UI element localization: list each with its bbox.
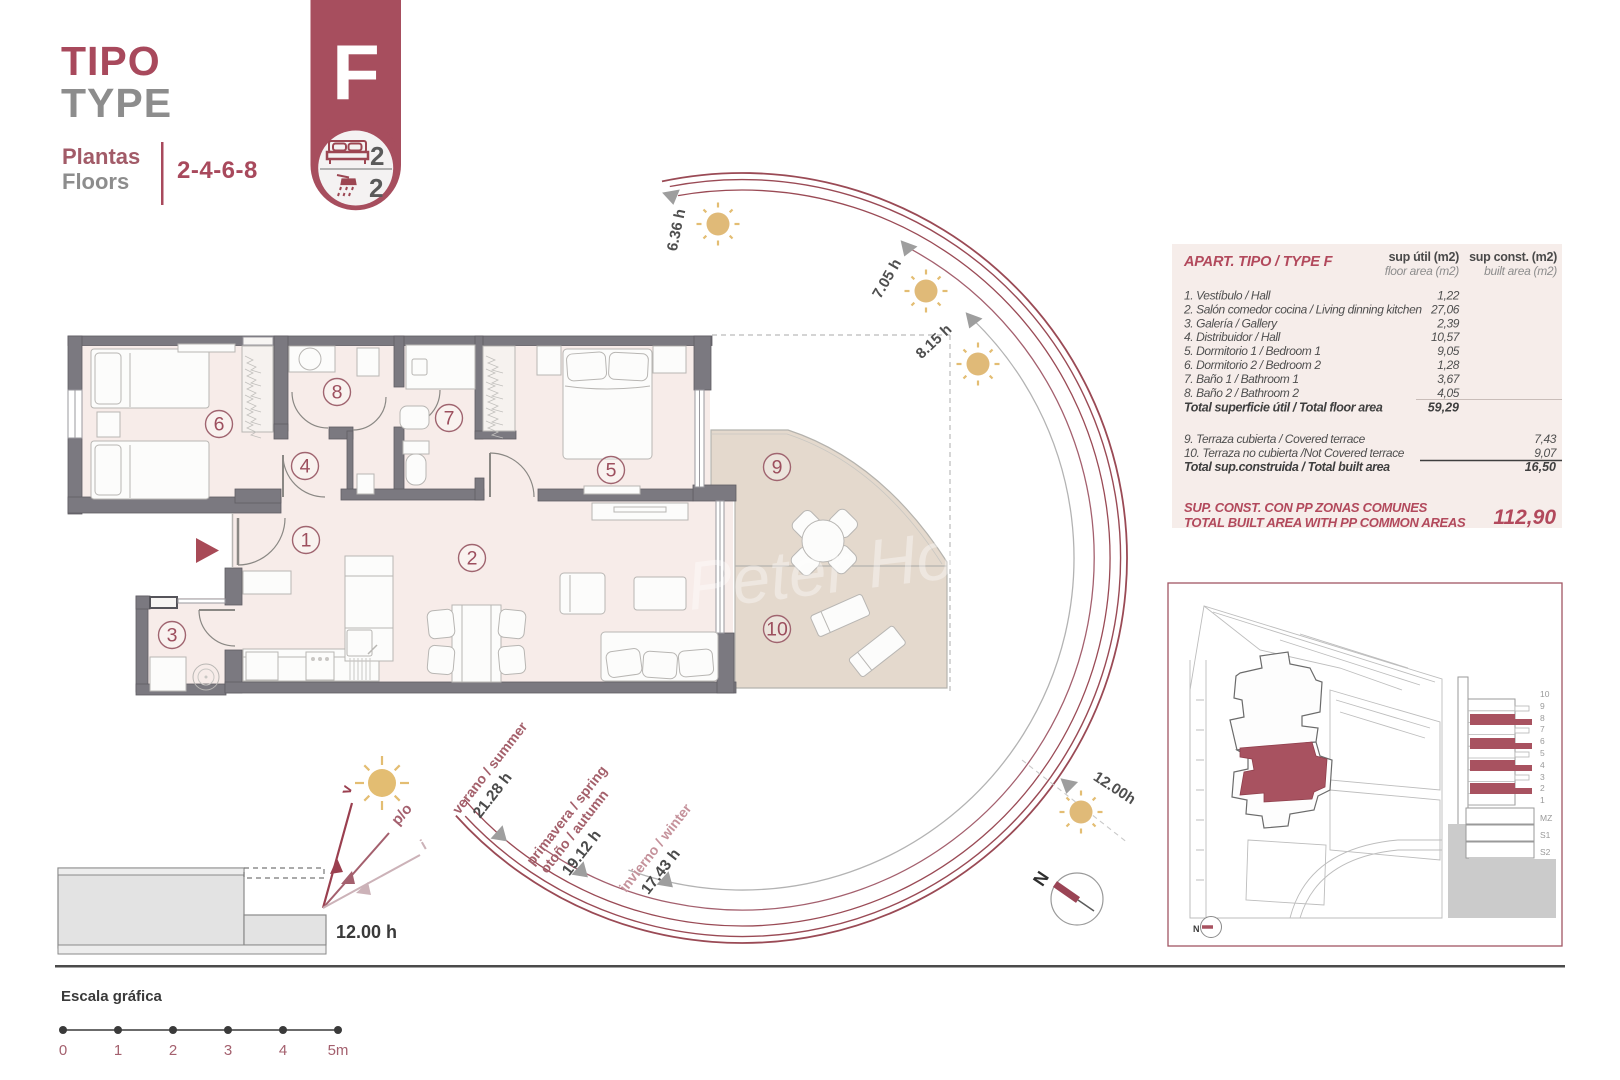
svg-text:5m: 5m <box>328 1042 349 1059</box>
svg-text:F: F <box>332 28 380 116</box>
svg-text:27,06: 27,06 <box>1430 302 1460 316</box>
svg-text:TIPO: TIPO <box>61 38 161 84</box>
svg-text:6: 6 <box>214 414 225 436</box>
svg-text:4. Distribuidor / Hall: 4. Distribuidor / Hall <box>1184 330 1281 344</box>
svg-text:MZ: MZ <box>1540 813 1552 823</box>
svg-text:2. Salón comedor cocina / Livi: 2. Salón comedor cocina / Living dinning… <box>1183 302 1422 316</box>
svg-text:9,05: 9,05 <box>1437 344 1459 358</box>
svg-text:floor area (m2): floor area (m2) <box>1385 264 1459 278</box>
svg-text:9,07: 9,07 <box>1534 446 1557 460</box>
svg-text:1,22: 1,22 <box>1437 289 1459 303</box>
svg-text:7: 7 <box>444 408 455 430</box>
svg-text:1: 1 <box>301 530 312 552</box>
svg-text:12.00 h: 12.00 h <box>336 922 397 942</box>
svg-text:5. Dormitorio 1 / Bedroom 1: 5. Dormitorio 1 / Bedroom 1 <box>1184 344 1321 358</box>
svg-text:2-4-6-8: 2-4-6-8 <box>177 157 258 184</box>
svg-text:3,67: 3,67 <box>1437 372 1460 386</box>
svg-text:2: 2 <box>370 141 384 171</box>
svg-text:59,29: 59,29 <box>1428 401 1459 415</box>
svg-text:8. Baño 2 / Bathroom 2: 8. Baño 2 / Bathroom 2 <box>1184 386 1299 400</box>
svg-text:1: 1 <box>114 1042 122 1059</box>
svg-text:2: 2 <box>169 1042 177 1059</box>
svg-text:Escala gráfica: Escala gráfica <box>61 988 163 1005</box>
svg-text:10,57: 10,57 <box>1431 330 1461 344</box>
svg-text:3: 3 <box>224 1042 232 1059</box>
svg-text:i: i <box>418 837 430 854</box>
svg-text:2,39: 2,39 <box>1436 316 1459 330</box>
svg-text:10: 10 <box>1540 689 1550 699</box>
svg-text:10: 10 <box>766 619 788 641</box>
svg-text:8.15 h: 8.15 h <box>913 321 956 362</box>
svg-text:9. Terraza cubierta / Covered: 9. Terraza cubierta / Covered terrace <box>1184 432 1366 446</box>
svg-text:4: 4 <box>1540 760 1545 770</box>
svg-text:8: 8 <box>332 382 343 404</box>
svg-text:v: v <box>338 783 357 796</box>
svg-text:10. Terraza no cubierta /Not C: 10. Terraza no cubierta /Not Covered ter… <box>1184 446 1405 460</box>
svg-text:4: 4 <box>300 456 311 478</box>
svg-text:TYPE: TYPE <box>61 80 172 126</box>
svg-text:9: 9 <box>1540 701 1545 711</box>
svg-text:1. Vestíbulo / Hall: 1. Vestíbulo / Hall <box>1184 289 1271 303</box>
svg-text:12.00h: 12.00h <box>1090 768 1138 808</box>
svg-text:7,43: 7,43 <box>1534 432 1556 446</box>
svg-text:4,05: 4,05 <box>1437 386 1459 400</box>
svg-text:3: 3 <box>167 625 178 647</box>
svg-text:N: N <box>1193 924 1200 934</box>
svg-text:7.05 h: 7.05 h <box>869 256 905 301</box>
svg-text:16,50: 16,50 <box>1525 460 1556 474</box>
svg-text:5: 5 <box>1540 748 1545 758</box>
svg-text:7: 7 <box>1540 724 1545 734</box>
svg-text:6: 6 <box>1540 736 1545 746</box>
svg-text:7. Baño 1 / Bathroom 1: 7. Baño 1 / Bathroom 1 <box>1184 372 1299 386</box>
svg-text:3: 3 <box>1540 772 1545 782</box>
svg-text:SUP. CONST. CON PP ZONAS COMUN: SUP. CONST. CON PP ZONAS COMUNES <box>1184 500 1428 515</box>
svg-text:2: 2 <box>1540 783 1545 793</box>
svg-text:6.36 h: 6.36 h <box>664 207 689 252</box>
svg-text:2: 2 <box>467 548 478 570</box>
svg-text:9: 9 <box>772 457 783 479</box>
svg-text:0: 0 <box>59 1042 67 1059</box>
svg-text:S1: S1 <box>1540 830 1551 840</box>
svg-text:sup útil (m2): sup útil (m2) <box>1389 250 1460 264</box>
svg-text:8: 8 <box>1540 713 1545 723</box>
svg-text:built area (m2): built area (m2) <box>1484 264 1557 278</box>
svg-text:Plantas: Plantas <box>62 144 140 169</box>
svg-text:Total sup.construida / Total b: Total sup.construida / Total built area <box>1184 460 1390 474</box>
svg-text:6. Dormitorio 2 / Bedroom 2: 6. Dormitorio 2 / Bedroom 2 <box>1184 358 1321 372</box>
svg-text:5: 5 <box>606 460 617 482</box>
svg-text:TOTAL BUILT AREA WITH PP COMMO: TOTAL BUILT AREA WITH PP COMMON AREAS <box>1184 515 1466 530</box>
svg-text:4: 4 <box>279 1042 287 1059</box>
svg-text:APART. TIPO / TYPE F: APART. TIPO / TYPE F <box>1183 254 1334 270</box>
svg-text:1,28: 1,28 <box>1437 358 1459 372</box>
svg-text:sup const. (m2): sup const. (m2) <box>1469 250 1557 264</box>
svg-text:S2: S2 <box>1540 847 1551 857</box>
svg-text:Floors: Floors <box>62 169 129 194</box>
svg-text:p/o: p/o <box>388 800 416 828</box>
svg-text:N: N <box>1029 868 1053 890</box>
svg-text:1: 1 <box>1540 795 1545 805</box>
svg-text:3. Galería / Gallery: 3. Galería / Gallery <box>1184 316 1278 330</box>
svg-text:112,90: 112,90 <box>1493 506 1556 529</box>
svg-text:Total superficie útil / Total: Total superficie útil / Total floor area <box>1184 401 1383 415</box>
svg-text:2: 2 <box>369 173 383 203</box>
